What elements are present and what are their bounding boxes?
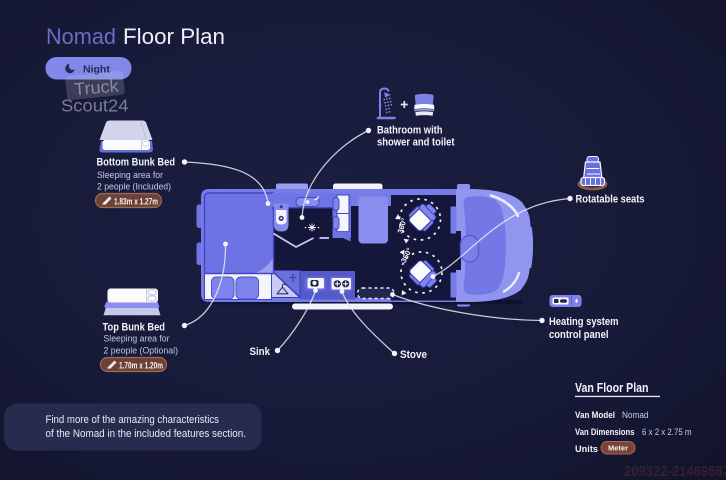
svg-text:Rotatable seats: Rotatable seats [576,194,645,206]
svg-text:Van Model: Van Model [575,410,615,421]
svg-text:of the Nomad in the included f: of the Nomad in the included features se… [46,428,247,440]
svg-text:Top Bunk Bed: Top Bunk Bed [103,322,166,334]
svg-text:Sink: Sink [250,346,271,358]
svg-text:6 x 2 x 2.75 m: 6 x 2 x 2.75 m [642,427,692,438]
svg-text:209322-21469587: 209322-21469587 [624,464,726,480]
svg-text:Meter: Meter [608,443,628,452]
svg-text:Van Floor Plan: Van Floor Plan [575,381,649,395]
svg-text:1.70m x 1.20m: 1.70m x 1.20m [119,361,163,371]
svg-text:Sleeping area for: Sleeping area for [104,334,170,345]
svg-text:Nomad: Nomad [622,410,649,421]
svg-text:Nomad: Nomad [46,24,116,49]
svg-text:Van Dimensions: Van Dimensions [575,427,635,438]
svg-text:2 people (Included): 2 people (Included) [97,182,171,193]
svg-text:Floor Plan: Floor Plan [123,24,225,49]
svg-text:Bathroom with: Bathroom with [377,125,443,137]
svg-text:Sleeping area for: Sleeping area for [97,170,163,181]
svg-text:Stove: Stove [400,349,427,361]
svg-text:2 people (Optional): 2 people (Optional) [104,346,179,357]
svg-text:1.83m x 1.27m: 1.83m x 1.27m [114,197,158,207]
svg-text:control panel: control panel [549,329,609,341]
svg-text:Units: Units [575,444,598,455]
svg-text:Bottom Bunk Bed: Bottom Bunk Bed [97,157,176,169]
svg-text:Heating system: Heating system [549,316,619,328]
svg-text:shower and toilet: shower and toilet [377,137,455,149]
svg-text:Find more of the amazing chara: Find more of the amazing characteristics [46,414,220,426]
svg-text:Scout24: Scout24 [61,96,129,116]
